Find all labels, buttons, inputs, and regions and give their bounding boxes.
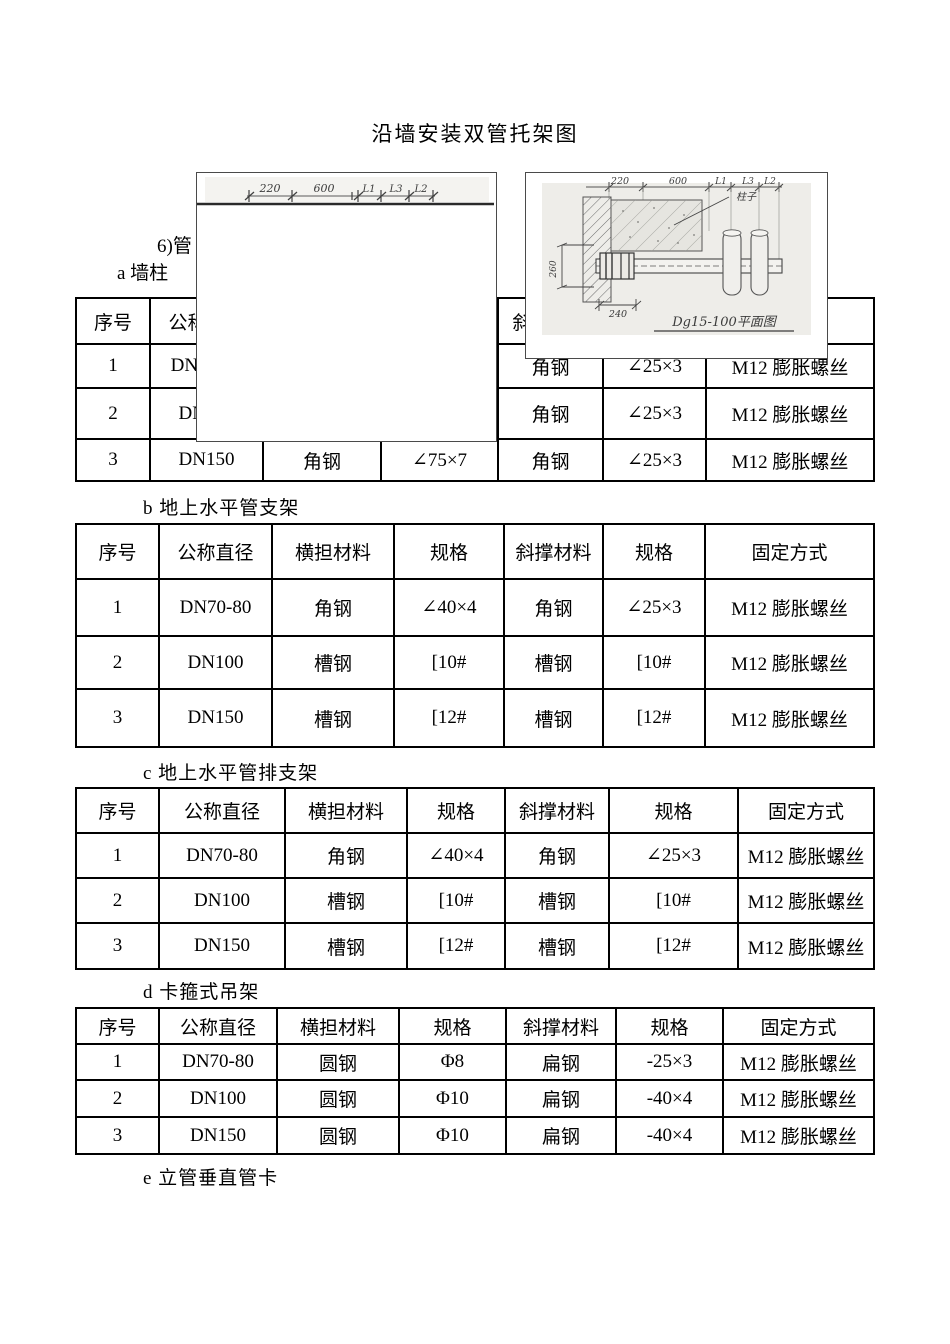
table-cell: 槽钢: [273, 690, 395, 746]
table-cell: 2: [77, 389, 151, 438]
table-cell: ∠25×3: [610, 834, 739, 877]
table-cell: [12#: [604, 690, 706, 746]
header-cell: 规格: [400, 1009, 507, 1043]
table-cell: 扁钢: [507, 1045, 617, 1079]
table-cell: [12#: [610, 924, 739, 968]
dim-label-l3: L3: [741, 177, 754, 187]
header-cell: 序号: [77, 789, 160, 832]
table-cell: 2: [77, 879, 160, 922]
table-cell: DN150: [160, 690, 273, 746]
table-cell: [10#: [408, 879, 506, 922]
table-cell: M12 膨胀螺丝: [739, 879, 873, 922]
table-cell: DN150: [160, 924, 286, 968]
table-cell: 圆钢: [278, 1118, 400, 1153]
table-row: 1DN70-80角钢∠40×4角钢∠25×3M12 膨胀螺丝: [77, 580, 873, 637]
table-header-row: 序号公称直径横担材料规格斜撑材料规格固定方式: [77, 789, 873, 834]
header-cell: 公称直径: [160, 1009, 278, 1043]
table-cell: M12 膨胀螺丝: [707, 389, 873, 438]
header-cell: 横担材料: [273, 525, 395, 578]
table-cell: ∠25×3: [604, 440, 707, 480]
header-cell: 斜撑材料: [506, 789, 610, 832]
table-row: 2DN100圆钢Φ10扁钢-40×4M12 膨胀螺丝: [77, 1081, 873, 1118]
table-cell: 1: [77, 1045, 160, 1079]
table-cell: Φ8: [400, 1045, 507, 1079]
dim-label-l1: L1: [714, 177, 727, 187]
table-cell: DN70-80: [160, 580, 273, 635]
table-header-row: 序号公称直径横担材料规格斜撑材料规格固定方式: [77, 525, 873, 580]
table-cell: 1: [77, 345, 151, 387]
table-cell: 3: [77, 1118, 160, 1153]
table-cell: M12 膨胀螺丝: [739, 924, 873, 968]
page-title: 沿墙安装双管托架图: [0, 118, 950, 148]
table-cell: 圆钢: [278, 1081, 400, 1116]
table-cell: 槽钢: [286, 879, 408, 922]
table-row: 2DN100槽钢[10#槽钢[10#M12 膨胀螺丝: [77, 879, 873, 924]
table-cell: 槽钢: [506, 879, 610, 922]
table-cell: 2: [77, 637, 160, 688]
dim-label-240: 240: [608, 309, 627, 320]
table-cell: DN150: [160, 1118, 278, 1153]
table-cell: 角钢: [506, 834, 610, 877]
table-cell: 1: [77, 834, 160, 877]
table-cell: [10#: [395, 637, 505, 688]
table-cell: ∠25×3: [604, 580, 706, 635]
dim-label-600: 600: [314, 182, 335, 195]
table-cell: M12 膨胀螺丝: [724, 1081, 873, 1116]
table-cell: DN70-80: [160, 834, 286, 877]
table-cell: [12#: [408, 924, 506, 968]
document-page: 沿墙安装双管托架图 6)管 a 墙柱 序号公称直径斜撑材料固定方式1DN70-8…: [0, 0, 950, 1344]
table-cell: M12 膨胀螺丝: [739, 834, 873, 877]
table-cell: ∠25×3: [604, 389, 707, 438]
table-row: 3DN150圆钢Φ10扁钢-40×4M12 膨胀螺丝: [77, 1118, 873, 1153]
section-a-label: a 墙柱: [117, 258, 168, 285]
table-cell: M12 膨胀螺丝: [706, 637, 873, 688]
table-cell: 角钢: [273, 580, 395, 635]
table-row: 3DN150槽钢[12#槽钢[12#M12 膨胀螺丝: [77, 924, 873, 968]
table-clamp-hangers: 序号公称直径横担材料规格斜撑材料规格固定方式1DN70-80圆钢Φ8扁钢-25×…: [75, 1007, 875, 1155]
table-cell: 1: [77, 580, 160, 635]
table-cell: 角钢: [505, 580, 604, 635]
table-cell: ∠75×7: [382, 440, 499, 480]
table-cell: M12 膨胀螺丝: [724, 1045, 873, 1079]
header-cell: 斜撑材料: [507, 1009, 617, 1043]
header-cell: 固定方式: [724, 1009, 873, 1043]
table-cell: 槽钢: [505, 637, 604, 688]
table-cell: 角钢: [264, 440, 382, 480]
dim-label-260: 260: [549, 260, 559, 278]
table-header-row: 序号公称直径横担材料规格斜撑材料规格固定方式: [77, 1009, 873, 1045]
header-cell: 规格: [408, 789, 506, 832]
table-row: 3DN150槽钢[12#槽钢[12#M12 膨胀螺丝: [77, 690, 873, 746]
table-cell: 3: [77, 924, 160, 968]
table-cell: 槽钢: [286, 924, 408, 968]
table-cell: Φ10: [400, 1118, 507, 1153]
header-cell: 规格: [604, 525, 706, 578]
section-b-label: b 地上水平管支架: [143, 493, 299, 520]
table-cell: [10#: [610, 879, 739, 922]
table-horizontal-pipe-row-supports: 序号公称直径横担材料规格斜撑材料规格固定方式1DN70-80角钢∠40×4角钢∠…: [75, 787, 875, 970]
bracket-drawing-figure-left: 220 600 L1 L3 L2: [196, 172, 497, 442]
table-cell: -25×3: [617, 1045, 724, 1079]
table-cell: [12#: [395, 690, 505, 746]
table-cell: -40×4: [617, 1081, 724, 1116]
section-c-label: c 地上水平管排支架: [143, 758, 318, 785]
table-cell: DN100: [160, 1081, 278, 1116]
header-cell: 规格: [610, 789, 739, 832]
table-row: 2DN100槽钢[10#槽钢[10#M12 膨胀螺丝: [77, 637, 873, 690]
header-cell: 公称直径: [160, 789, 286, 832]
table-row: 1DN70-80角钢∠40×4角钢∠25×3M12 膨胀螺丝: [77, 834, 873, 879]
header-cell: 固定方式: [739, 789, 873, 832]
bracket-drawing-figure-right: 220 600 L1 L3 L2 柱子: [525, 172, 828, 359]
dim-label-l2: L2: [413, 184, 427, 195]
table-above-ground-horizontal-pipe-supports: 序号公称直径横担材料规格斜撑材料规格固定方式1DN70-80角钢∠40×4角钢∠…: [75, 523, 875, 748]
paragraph-fragment: 6)管: [157, 231, 192, 258]
table-row: 1DN70-80圆钢Φ8扁钢-25×3M12 膨胀螺丝: [77, 1045, 873, 1081]
table-cell: ∠40×4: [395, 580, 505, 635]
table-cell: ∠40×4: [408, 834, 506, 877]
table-row: 3DN150角钢∠75×7角钢∠25×3M12 膨胀螺丝: [77, 440, 873, 480]
column-label: 柱子: [736, 191, 757, 203]
table-cell: DN150: [151, 440, 264, 480]
dim-label-l2: L2: [763, 177, 776, 187]
table-cell: DN100: [160, 637, 273, 688]
table-cell: -40×4: [617, 1118, 724, 1153]
dim-label-220: 220: [610, 176, 629, 187]
header-cell: 横担材料: [286, 789, 408, 832]
table-cell: DN100: [160, 879, 286, 922]
wall-hatch: [583, 197, 611, 302]
header-cell: 序号: [77, 525, 160, 578]
table-cell: 3: [77, 690, 160, 746]
header-cell: 斜撑材料: [505, 525, 604, 578]
table-cell: M12 膨胀螺丝: [724, 1118, 873, 1153]
figure-caption: Dg15-100平面图: [671, 315, 777, 330]
table-cell: M12 膨胀螺丝: [707, 440, 873, 480]
header-cell: 横担材料: [278, 1009, 400, 1043]
table-cell: 圆钢: [278, 1045, 400, 1079]
table-cell: 槽钢: [505, 690, 604, 746]
table-cell: DN70-80: [160, 1045, 278, 1079]
wall-clamp: [600, 253, 634, 279]
header-cell: 序号: [77, 299, 151, 343]
dim-label-l3: L3: [388, 184, 402, 195]
dim-label-220: 220: [259, 182, 281, 195]
table-cell: 角钢: [499, 389, 604, 438]
table-cell: Φ10: [400, 1081, 507, 1116]
table-cell: 槽钢: [273, 637, 395, 688]
header-cell: 规格: [617, 1009, 724, 1043]
table-cell: 扁钢: [507, 1081, 617, 1116]
section-d-label: d 卡箍式吊架: [143, 977, 259, 1004]
dim-label-600: 600: [669, 176, 687, 187]
section-e-label: e 立管垂直管卡: [143, 1163, 278, 1190]
header-cell: 固定方式: [706, 525, 873, 578]
header-cell: 序号: [77, 1009, 160, 1043]
dim-label-l1: L1: [361, 184, 375, 195]
header-cell: 公称直径: [160, 525, 273, 578]
table-cell: 2: [77, 1081, 160, 1116]
table-cell: 扁钢: [507, 1118, 617, 1153]
table-cell: [10#: [604, 637, 706, 688]
header-cell: 规格: [395, 525, 505, 578]
table-cell: 槽钢: [506, 924, 610, 968]
table-cell: M12 膨胀螺丝: [706, 580, 873, 635]
table-cell: 3: [77, 440, 151, 480]
table-cell: 角钢: [286, 834, 408, 877]
table-cell: M12 膨胀螺丝: [706, 690, 873, 746]
table-cell: 角钢: [499, 440, 604, 480]
